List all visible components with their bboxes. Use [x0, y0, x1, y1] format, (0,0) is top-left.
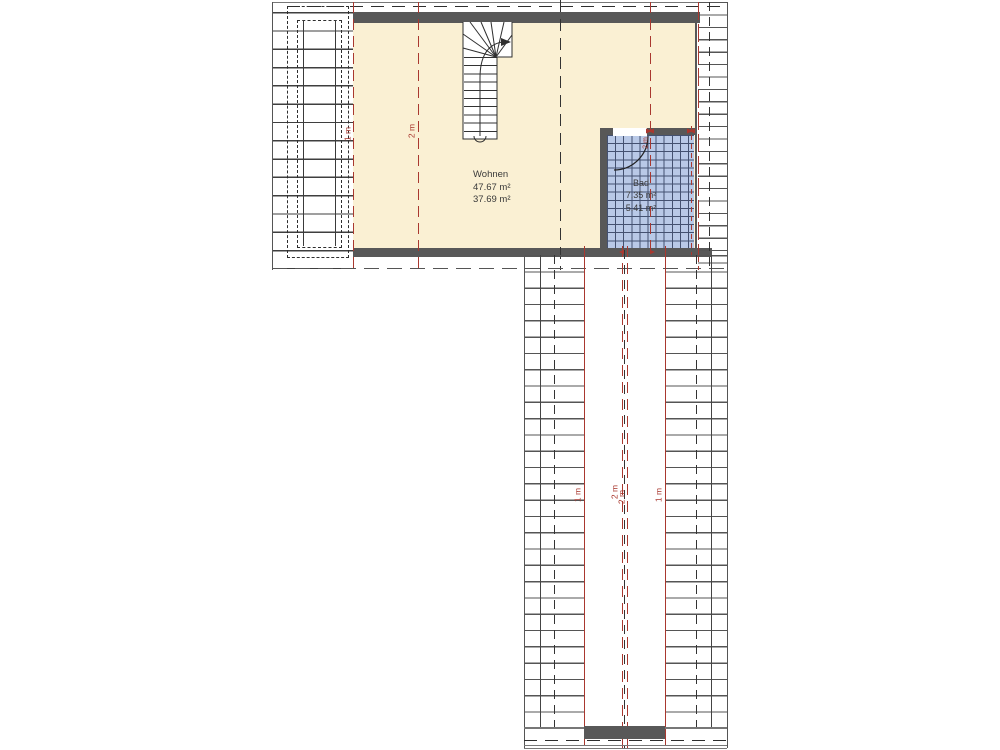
- bathroom-area-net: 5.41 m²: [626, 202, 657, 214]
- lower-bottom-line-3: [524, 748, 727, 749]
- bath-wall-top-stub: [600, 128, 613, 135]
- marker-2m-bath: 2 m: [642, 137, 651, 149]
- wall-top: [353, 12, 700, 23]
- height-line-right-eave: [698, 2, 699, 270]
- height-line-2m-bath: [650, 2, 651, 257]
- roof-hatch-right-centerline: [709, 2, 710, 268]
- marker-1m-corridor-right: 1 m: [655, 488, 664, 502]
- height-line-bath-right: [691, 126, 692, 257]
- roof-hatch-right-border: [727, 2, 728, 270]
- bath-door-opening: [613, 128, 647, 136]
- marker-1m-corridor-left: 1 m: [574, 488, 583, 502]
- dormer-post-right: [335, 20, 336, 246]
- marker-2m-corridor-b: 2 m: [618, 490, 627, 504]
- height-line-1m-left: [353, 2, 354, 270]
- bathroom-area-gross: 7.35 m²: [626, 189, 657, 201]
- lower-right-rafter-dashed: [696, 255, 697, 727]
- lower-right-border: [727, 255, 728, 748]
- living-room-area-gross: 47.67 m²: [473, 182, 511, 195]
- living-room-label: Wohnen 47.67 m² 37.69 m²: [473, 169, 511, 207]
- lower-right-rafter-solid: [711, 255, 712, 727]
- eave-dashed-line: [272, 268, 727, 269]
- ridge-line-upper: [560, 0, 562, 270]
- lower-left-border: [524, 255, 525, 748]
- bathroom-name: Bad: [626, 177, 657, 189]
- roof-hatch-left-border: [272, 2, 273, 270]
- lower-left-rafter-solid: [540, 255, 541, 727]
- stair-winder: [497, 22, 512, 57]
- height-line-1m-corridor-left: [584, 246, 585, 746]
- bath-wall-left: [600, 128, 607, 257]
- lower-end-wall: [584, 726, 665, 739]
- roof-hatch-right: [698, 2, 727, 268]
- living-room-area-net: 37.69 m²: [473, 194, 511, 207]
- lower-bottom-line-2: [524, 745, 727, 746]
- bath-wall-top-right: [647, 128, 697, 135]
- lower-left-rafter-dashed: [554, 255, 555, 727]
- dormer-post-left: [303, 20, 304, 246]
- marker-1m-left: 1 m: [344, 127, 353, 141]
- marker-2m-left: 2 m: [408, 124, 417, 138]
- top-outer-line: [272, 2, 728, 3]
- height-line-1m-corridor-right: [665, 246, 666, 746]
- lower-bottom-dashed: [524, 740, 727, 741]
- height-line-2m-left: [418, 2, 419, 270]
- stair-treads: [464, 57, 497, 134]
- floor-plan-canvas: Wohnen 47.67 m² 37.69 m² Bad 7.35 m² 5.4…: [0, 0, 1000, 750]
- height-line-2m-corridor-b: [627, 246, 628, 748]
- bathroom-label: Bad 7.35 m² 5.41 m²: [626, 177, 657, 214]
- living-room-name: Wohnen: [473, 169, 511, 182]
